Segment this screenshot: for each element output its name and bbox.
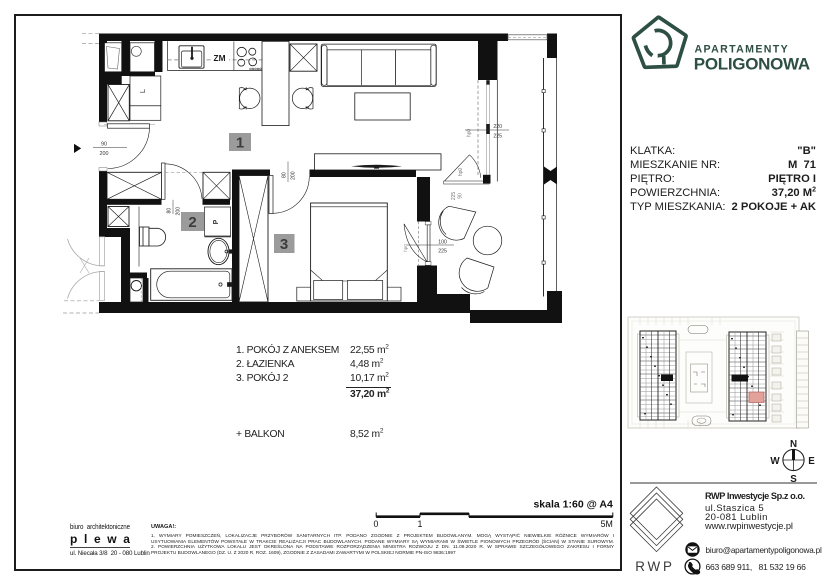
- svg-text:N: N: [790, 439, 797, 450]
- svg-text:hp0: hp0: [467, 129, 473, 138]
- svg-text:220: 220: [493, 124, 502, 130]
- svg-text:ZM: ZM: [214, 53, 226, 63]
- svg-text:100: 100: [438, 239, 447, 245]
- svg-text:90: 90: [101, 142, 107, 148]
- svg-text:200: 200: [100, 151, 109, 157]
- svg-text:POLIGONOWA: POLIGONOWA: [694, 54, 810, 73]
- svg-text:2: 2: [188, 214, 196, 231]
- svg-text:P: P: [213, 219, 220, 224]
- svg-text:225: 225: [493, 134, 502, 140]
- svg-text:90: 90: [458, 193, 464, 199]
- svg-text:80: 80: [282, 172, 288, 178]
- svg-text:200: 200: [176, 207, 182, 216]
- svg-text:L: L: [138, 89, 147, 93]
- svg-text:hp0: hp0: [403, 244, 408, 252]
- svg-text:W: W: [770, 456, 780, 467]
- svg-text:RWP: RWP: [635, 559, 674, 574]
- svg-text:skala 1:60 @ A4: skala 1:60 @ A4: [533, 499, 612, 511]
- svg-text:hp0: hp0: [458, 168, 464, 177]
- svg-text:E: E: [808, 456, 815, 467]
- svg-text:80: 80: [167, 208, 173, 214]
- svg-text:1: 1: [236, 134, 244, 151]
- svg-text:225: 225: [438, 248, 447, 254]
- svg-text:3: 3: [280, 236, 288, 253]
- svg-text:200: 200: [291, 171, 297, 180]
- svg-text:225: 225: [451, 192, 457, 201]
